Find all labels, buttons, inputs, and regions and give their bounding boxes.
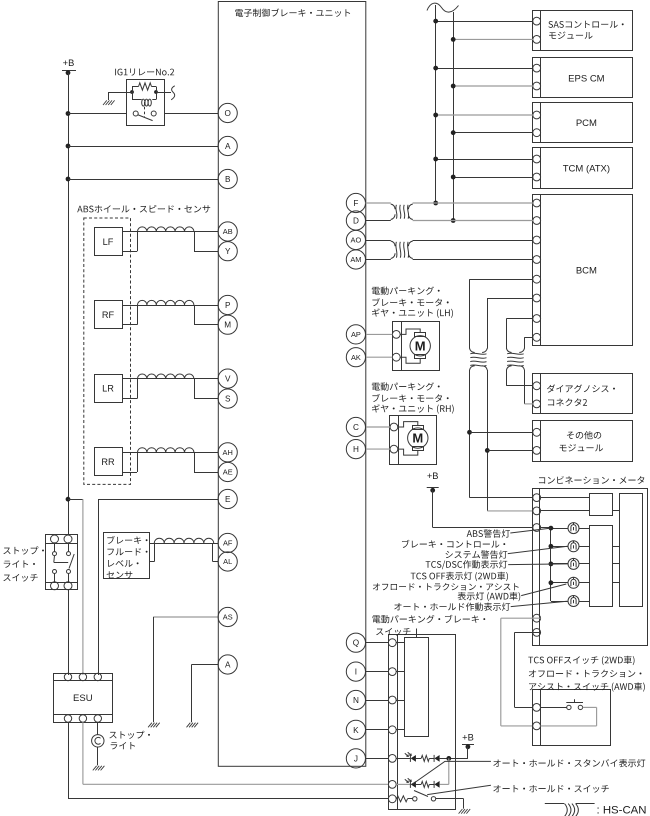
svg-text:Y: Y [225,247,231,256]
svg-text:PCM: PCM [576,118,597,129]
svg-text:F: F [353,199,358,208]
svg-text:J: J [354,754,358,763]
svg-text:AP: AP [351,330,361,339]
svg-text:Q: Q [353,639,359,648]
svg-text:AB: AB [223,227,233,236]
svg-text:O: O [225,109,231,118]
svg-text:AS: AS [223,613,233,622]
svg-text:S: S [225,395,231,404]
svg-text:M: M [415,338,426,353]
svg-text:B: B [225,175,231,184]
svg-text:I: I [355,668,357,677]
svg-text:N: N [353,696,359,705]
svg-text:A: A [225,660,231,669]
svg-text:LR: LR [102,384,114,394]
svg-text:C: C [353,423,359,432]
svg-text:D: D [353,216,359,225]
svg-text:TCM (ATX): TCM (ATX) [563,163,610,174]
svg-text:BCM: BCM [576,266,597,277]
svg-text:AM: AM [350,255,361,264]
svg-text:AH: AH [223,448,233,457]
svg-text:: HS-CAN: : HS-CAN [597,805,647,816]
svg-text:+B: +B [427,471,439,481]
svg-text:H: H [353,445,359,454]
svg-text:AF: AF [223,539,233,548]
svg-text:E: E [225,495,231,504]
svg-text:+B: +B [462,733,474,743]
svg-text:A: A [225,142,231,151]
svg-text:EPS CM: EPS CM [568,73,605,84]
svg-text:AL: AL [223,557,232,566]
svg-text:ESU: ESU [73,693,93,704]
svg-text:RR: RR [101,457,115,467]
svg-text:M: M [224,321,231,330]
svg-text:K: K [353,726,359,735]
svg-text:M: M [412,431,423,446]
svg-text:RF: RF [102,310,115,320]
svg-text:AK: AK [351,353,361,362]
svg-text:V: V [225,375,231,384]
svg-text:P: P [225,301,231,310]
svg-text:AE: AE [223,468,233,477]
svg-text:+B: +B [63,58,75,68]
svg-text:AO: AO [351,236,362,245]
svg-text:LF: LF [103,237,114,247]
